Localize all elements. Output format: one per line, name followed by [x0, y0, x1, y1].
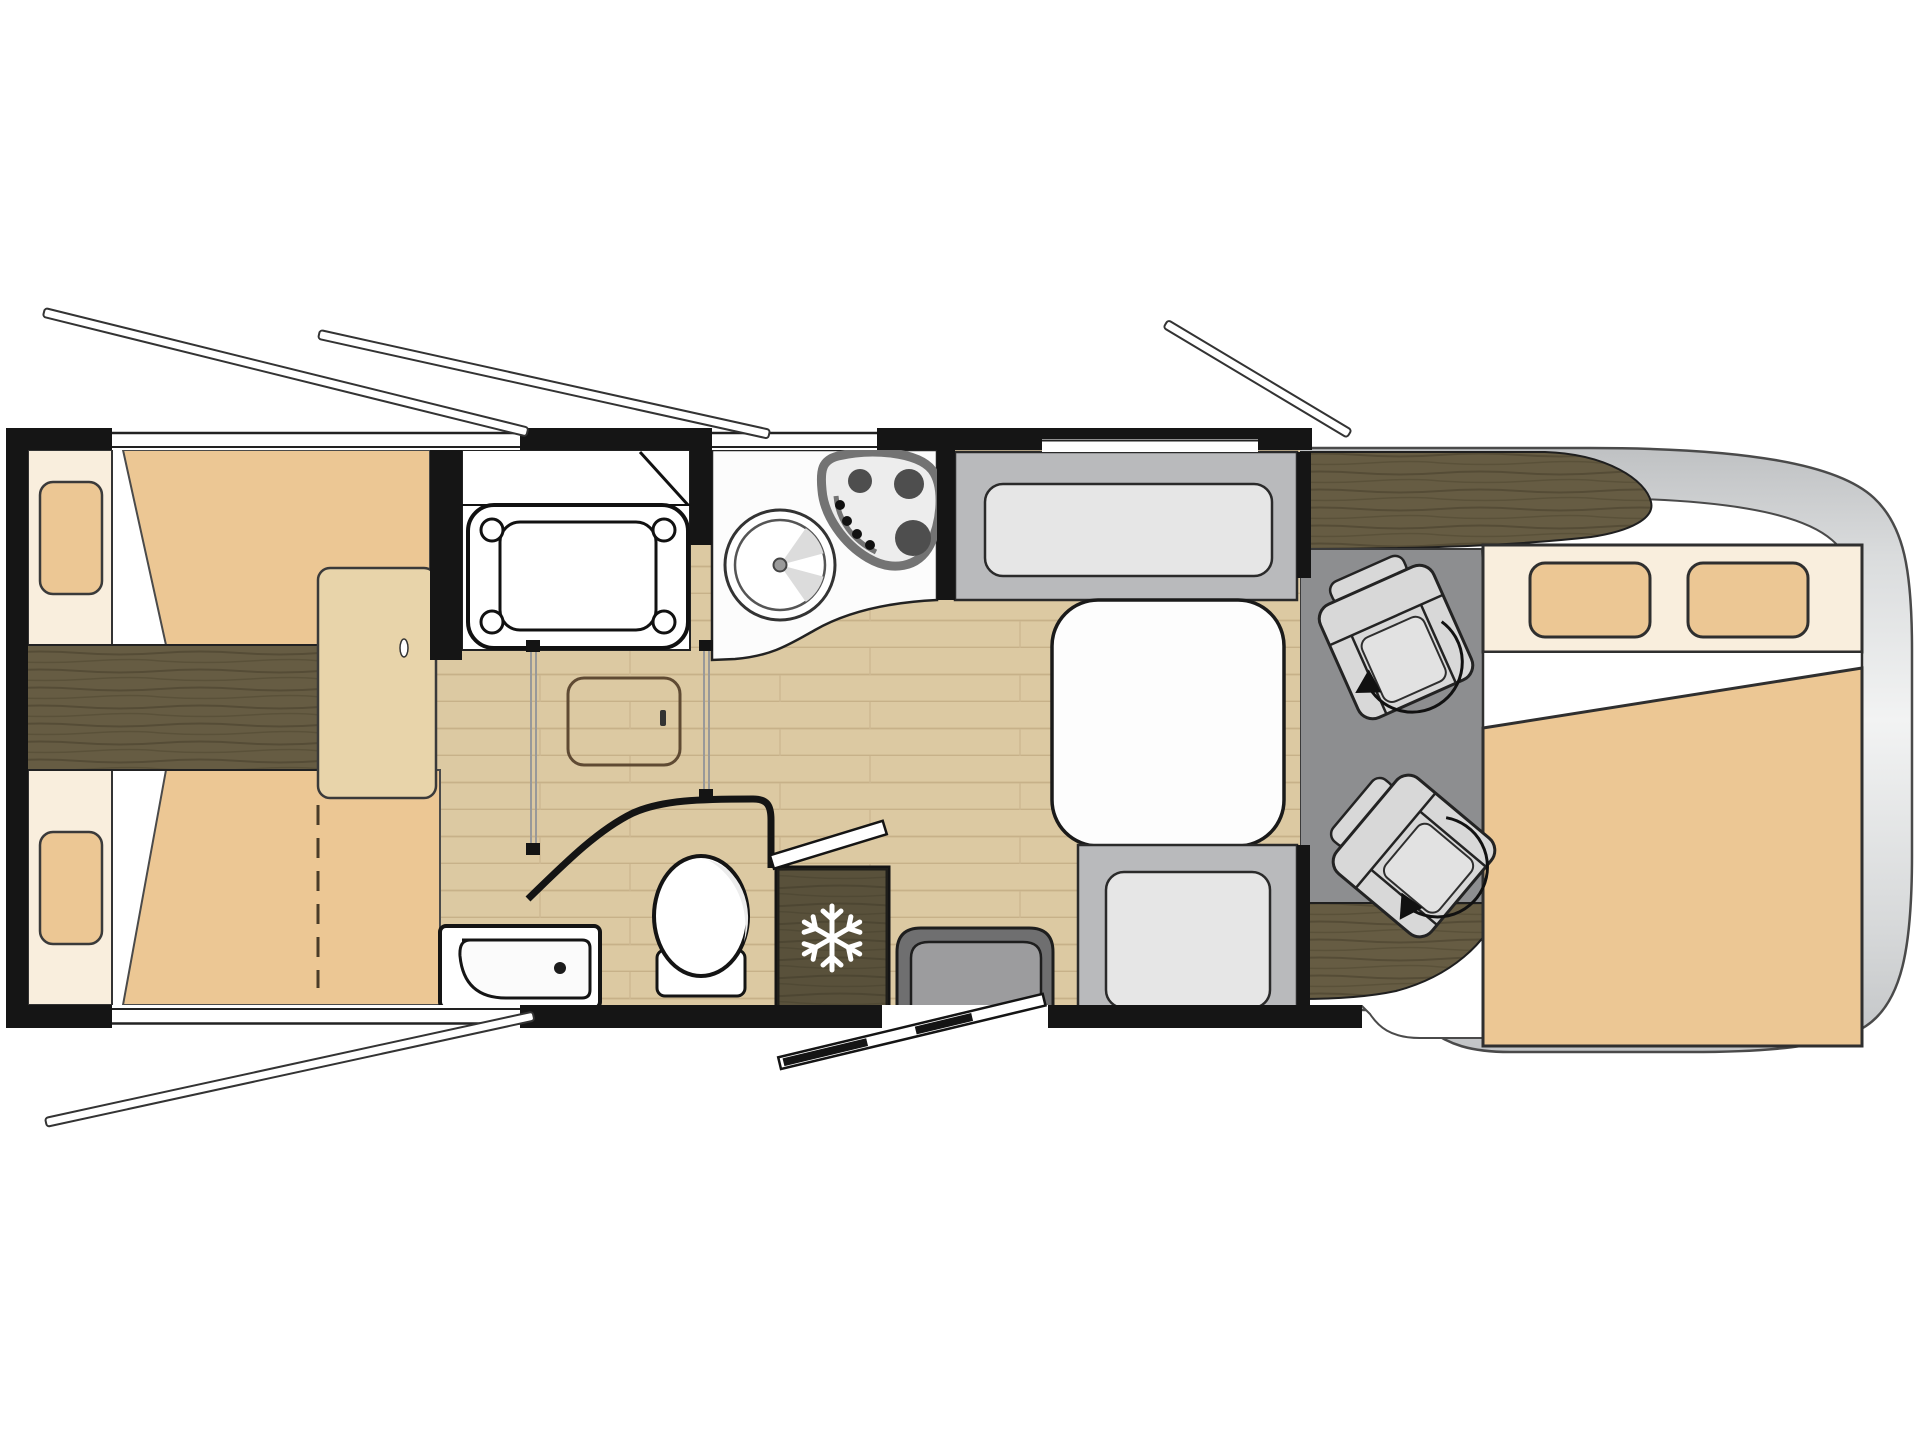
- shower-cabin: [462, 450, 690, 650]
- window-rear-bed-bottom: [112, 1005, 520, 1028]
- overcab-pillow-right: [1688, 563, 1808, 637]
- hob-knob: [852, 529, 862, 539]
- window-rear-bed-top: [112, 428, 520, 450]
- hatch-handle: [660, 710, 666, 726]
- washbasin-bowl: [460, 940, 590, 998]
- open-window-flap: [318, 330, 770, 439]
- floorplan-canvas: [0, 0, 1920, 1440]
- pillow-upper: [40, 482, 102, 594]
- tray-corner: [481, 519, 503, 541]
- hob-knob: [865, 540, 875, 550]
- overcab-mattress: [1483, 668, 1862, 1046]
- bench-front-cushion: [985, 484, 1272, 576]
- bottom-wall: [520, 1005, 882, 1028]
- shower-wall-left: [430, 428, 462, 660]
- rear-bedroom: [26, 450, 440, 1005]
- bed-step: [318, 568, 436, 798]
- top-wall: [1258, 428, 1312, 450]
- window-dinette: [1042, 439, 1258, 452]
- rear-wall: [6, 428, 28, 1028]
- hob-knob: [842, 516, 852, 526]
- step-handle: [400, 639, 408, 657]
- top-wall: [520, 428, 712, 450]
- top-wall-dinette-window-ledge: [1042, 428, 1258, 439]
- toilet-bowl: [654, 856, 748, 976]
- basin-drain: [554, 962, 566, 974]
- open-window-flap: [1163, 320, 1351, 438]
- top-wall: [6, 428, 112, 450]
- pillow-lower: [40, 832, 102, 944]
- tray-corner: [653, 611, 675, 633]
- wall-stub-top: [1297, 452, 1311, 578]
- tray-corner: [653, 519, 675, 541]
- dinette-table: [1052, 600, 1284, 846]
- bench-rear-cushion: [1106, 872, 1270, 1008]
- top-wall: [877, 428, 1042, 450]
- burner: [894, 469, 924, 499]
- overcab-pillow-left: [1530, 563, 1650, 637]
- hob-knob: [835, 500, 845, 510]
- overcab-bed: [1483, 545, 1862, 1046]
- wall-stub-bottom: [1297, 845, 1310, 1008]
- open-window-flap: [45, 1012, 534, 1127]
- open-window-flap: [43, 308, 529, 436]
- tray-corner: [481, 611, 503, 633]
- bottom-wall: [1048, 1005, 1362, 1028]
- burner: [895, 520, 931, 556]
- motorhome-floorplan: [0, 0, 1920, 1440]
- burner: [848, 469, 872, 493]
- mattress-lower: [123, 770, 440, 1005]
- dashboard: [1298, 452, 1651, 549]
- bottom-wall: [6, 1005, 112, 1028]
- sink-drain: [774, 559, 787, 572]
- shower-wall-right: [690, 428, 712, 545]
- center-aisle-dark-wood: [26, 645, 318, 770]
- kitchen-wall-stub: [937, 428, 955, 600]
